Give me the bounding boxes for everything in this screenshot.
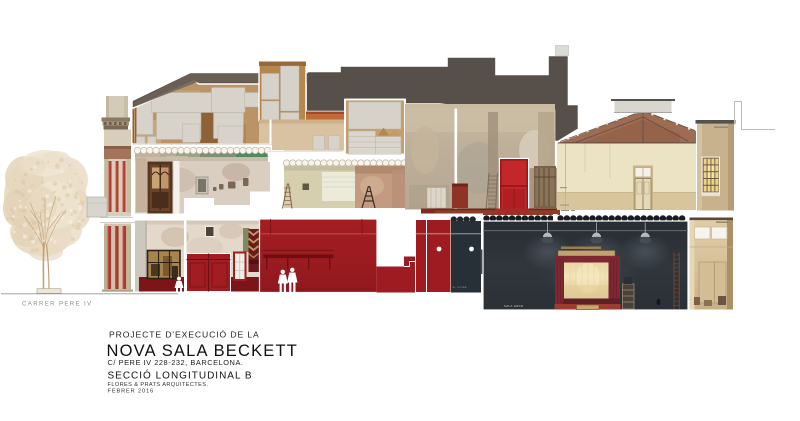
svg-text:C/ PERE IV 228-232, BARCELONA.: C/ PERE IV 228-232, BARCELONA. bbox=[108, 358, 244, 367]
svg-text:SECCIÓ LONGITUDINAL B: SECCIÓ LONGITUDINAL B bbox=[108, 369, 253, 382]
svg-text:CARRER PERE IV: CARRER PERE IV bbox=[22, 301, 92, 308]
svg-text:FEBRER 2016: FEBRER 2016 bbox=[108, 389, 155, 395]
svg-text:PROJECTE D'EXECUCIÓ DE LA: PROJECTE D'EXECUCIÓ DE LA bbox=[109, 330, 260, 340]
svg-text:FLORES & PRATS ARQUITECTES.: FLORES & PRATS ARQUITECTES. bbox=[108, 382, 209, 388]
svg-text:SALA GRAN: SALA GRAN bbox=[504, 304, 523, 308]
svg-text:SL. FOYER: SL. FOYER bbox=[453, 287, 467, 289]
